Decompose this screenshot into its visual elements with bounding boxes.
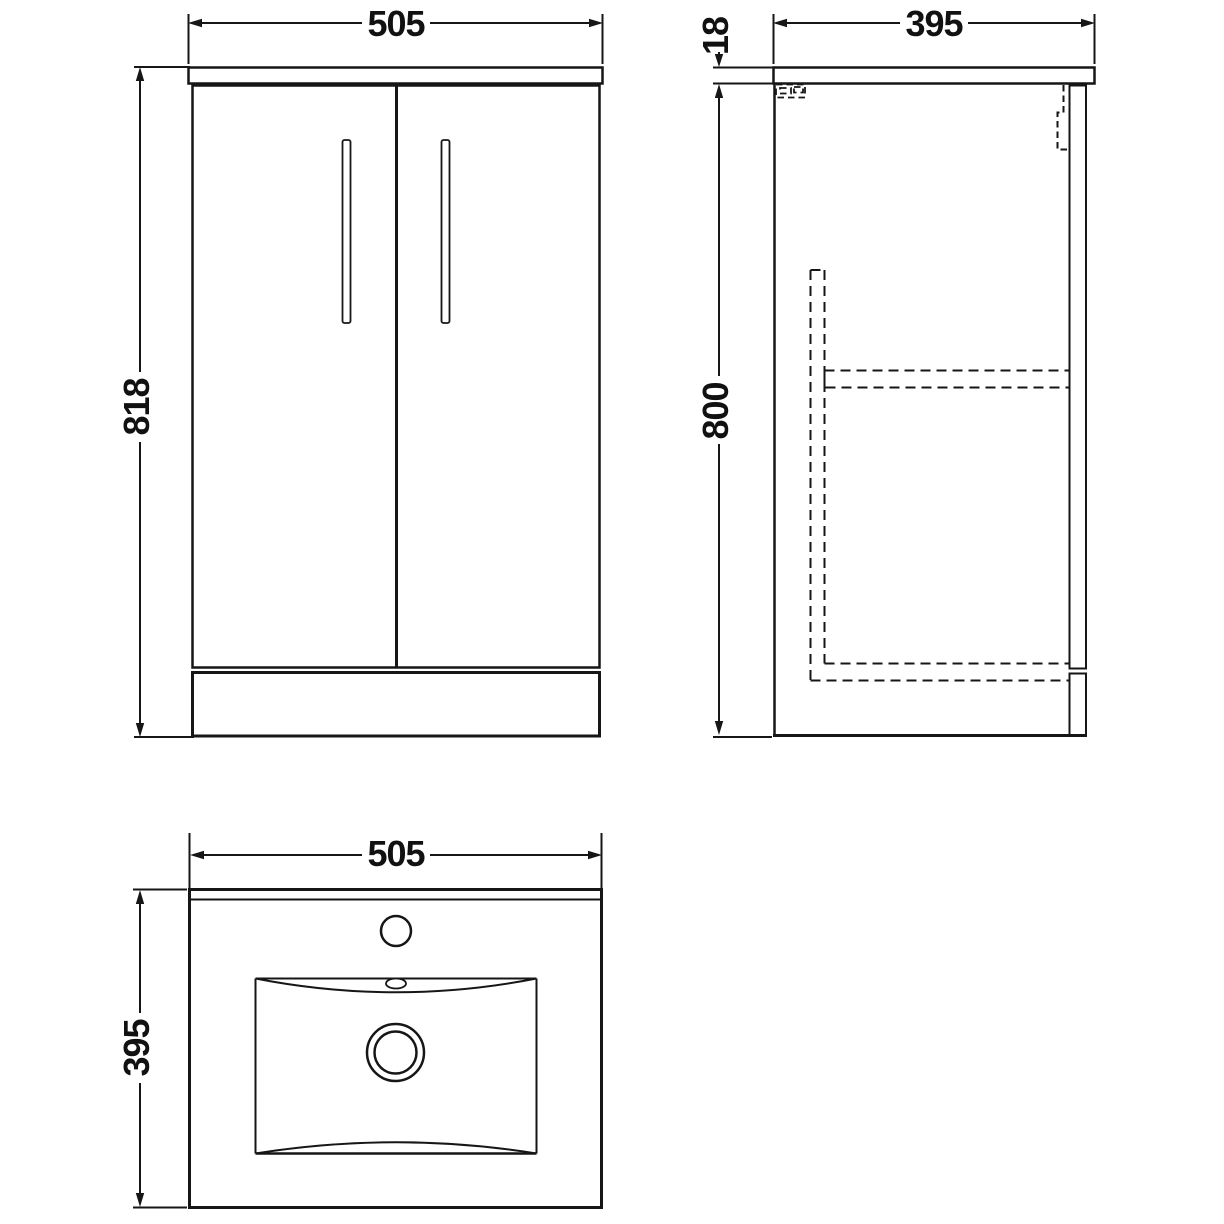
dim-arrow-right — [588, 851, 602, 859]
hidden-back-panel — [811, 270, 825, 681]
plan-width-dimension: 505 — [190, 833, 603, 888]
technical-drawing-canvas: 505 818 395 — [0, 0, 1224, 1224]
front-height-label: 818 — [116, 378, 157, 435]
front-width-label: 505 — [367, 3, 425, 44]
hidden-fixing-bracket — [776, 85, 805, 98]
side-plinth-edge — [1070, 674, 1087, 736]
side-depth-dimension: 395 — [773, 3, 1095, 64]
plan-depth-label: 395 — [116, 1018, 157, 1076]
tap-hole — [381, 916, 411, 946]
side-worktop — [774, 68, 1095, 84]
side-height-label: 800 — [695, 382, 736, 439]
front-worktop — [189, 68, 603, 84]
side-height-dimension: 800 — [695, 84, 772, 737]
hidden-line — [794, 87, 803, 93]
dim-arrow-left — [190, 851, 204, 859]
hidden-shelf — [825, 371, 1070, 388]
dim-arrow-left — [188, 19, 202, 27]
vanity-unit-drawing: 505 818 395 — [0, 0, 1224, 1224]
hidden-bottom-panel — [811, 664, 1070, 681]
waste-drain — [367, 1024, 424, 1081]
plan-depth-dimension: 395 — [116, 890, 187, 1208]
dim-arrow-down — [136, 1193, 144, 1207]
side-worktop-thickness-dimension: 18 — [695, 17, 775, 84]
dim-arrow-down — [715, 721, 723, 735]
side-door-edge — [1070, 86, 1087, 669]
dim-arrow-right — [589, 19, 603, 27]
plan-view: 505 395 — [116, 833, 602, 1208]
front-height-dimension: 818 — [116, 67, 194, 737]
front-view: 505 818 — [116, 3, 603, 737]
dim-arrow-up — [136, 890, 144, 904]
basin-bottom-curve — [256, 1142, 537, 1153]
dim-arrow-up — [715, 84, 723, 98]
front-plinth — [193, 673, 600, 737]
side-view: 395 18 800 — [695, 3, 1095, 737]
left-door-handle — [343, 140, 351, 323]
right-door-handle — [442, 140, 450, 323]
plan-width-label: 505 — [367, 833, 425, 874]
hidden-line — [780, 88, 791, 94]
hidden-hinge — [1058, 85, 1069, 150]
dim-arrow-down — [136, 723, 144, 737]
front-width-dimension: 505 — [188, 3, 603, 64]
side-worktop-thickness-label: 18 — [695, 17, 736, 55]
side-depth-label: 395 — [905, 3, 963, 44]
dim-arrow-up — [136, 67, 144, 81]
overflow-hole — [386, 979, 406, 989]
dim-arrow-left — [773, 19, 787, 27]
dim-arrow-right — [1081, 19, 1095, 27]
